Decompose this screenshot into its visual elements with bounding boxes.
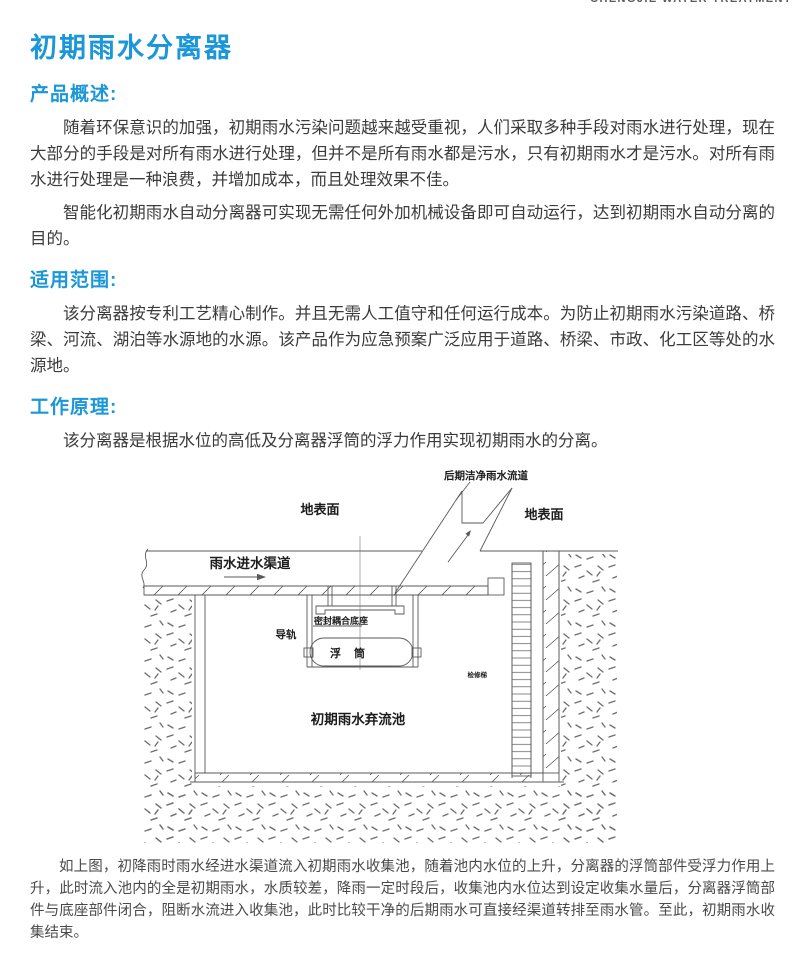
section-heading-overview: 产品概述: [30, 84, 775, 106]
overview-paragraph-2: 智能化初期雨水自动分离器可实现无需任何外加机械设备即可自动运行，达到初期雨水自动… [30, 200, 775, 252]
duct-arrow-line [448, 535, 468, 562]
diagram-linework [142, 482, 618, 782]
label-guide-rail: 导轨 [276, 628, 297, 641]
tank-right-wall-hatch [543, 551, 559, 773]
outlet-duct-opening [462, 488, 512, 523]
outlet-duct-right-edge [480, 488, 512, 551]
slab-hatch [144, 586, 488, 595]
separator-technical-diagram: 后期洁净雨水流道 地表面 地表面 雨水进水渠道 密封耦合底座 导轨 浮筒 检修梯… [130, 460, 670, 850]
document-page: CHENGJIE WATER TREATMENT 初期雨水分离器 产品概述: 随… [0, 0, 800, 970]
duct-arrow-head [465, 530, 471, 537]
principle-paragraph: 该分离器是根据水位的高低及分离器浮筒的浮力作用实现初期雨水的分离。 [30, 428, 775, 454]
outlet-label-leader [456, 482, 470, 500]
diagram-explanation-paragraph: 如上图，初降雨时雨水经进水渠道流入初期雨水收集池，随着池内水位的上升，分离器的浮… [30, 856, 775, 944]
section-heading-principle: 工作原理: [30, 397, 775, 419]
soil-right [561, 554, 617, 843]
label-ladder: 检修梯 [468, 670, 488, 679]
tank-bottom-hatch [195, 773, 543, 782]
overview-paragraph-1: 随着环保意识的加强，初期雨水污染问题越来越受重视，人们采取多种手段对雨水进行处理… [30, 115, 775, 193]
outlet-duct-left-edge [395, 491, 462, 593]
diagram-svg: 后期洁净雨水流道 地表面 地表面 雨水进水渠道 密封耦合底座 导轨 浮筒 检修梯… [130, 460, 670, 850]
inlet-arrow-head [257, 574, 266, 580]
label-float-drum: 浮筒 [330, 646, 378, 660]
section-heading-scope: 适用范围: [30, 270, 775, 292]
label-tank: 初期雨水弃流池 [311, 711, 406, 728]
ladder-rungs [512, 563, 531, 776]
label-clean-outlet: 后期洁净雨水流道 [444, 469, 528, 482]
ladder-curb [488, 578, 504, 595]
label-ground-right: 地表面 [524, 507, 563, 523]
soil-bottom [148, 786, 614, 843]
label-ground-left: 地表面 [300, 502, 339, 518]
brand-watermark: CHENGJIE WATER TREATMENT [590, 0, 792, 5]
scope-paragraph: 该分离器按专利工艺精心制作。并且无需人工值守和任何运行成本。为防止初期雨水污染道… [30, 301, 775, 379]
label-seal-base: 密封耦合底座 [313, 615, 368, 627]
break-line [142, 549, 148, 588]
label-inlet-channel: 雨水进水渠道 [210, 555, 291, 572]
page-title: 初期雨水分离器 [30, 30, 775, 66]
tank-left-wall [195, 595, 205, 782]
